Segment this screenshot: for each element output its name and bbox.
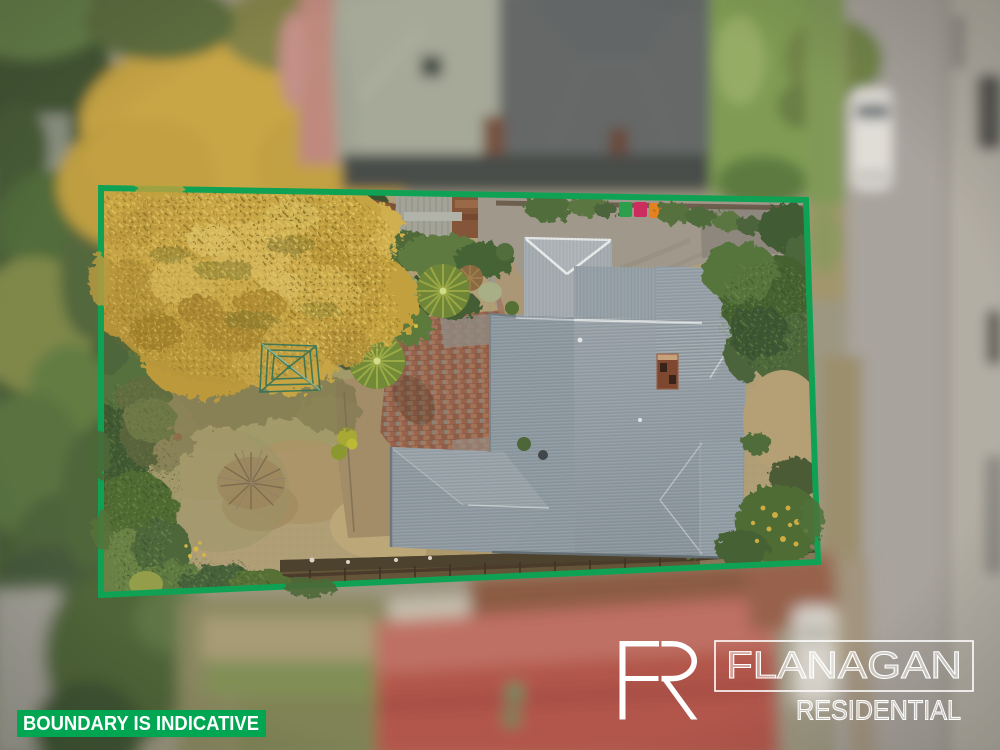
svg-text:RESIDENTIAL: RESIDENTIAL xyxy=(796,695,961,726)
svg-text:BOUNDARY IS INDICATIVE: BOUNDARY IS INDICATIVE xyxy=(23,713,259,735)
svg-text:FLANAGAN: FLANAGAN xyxy=(726,645,962,687)
